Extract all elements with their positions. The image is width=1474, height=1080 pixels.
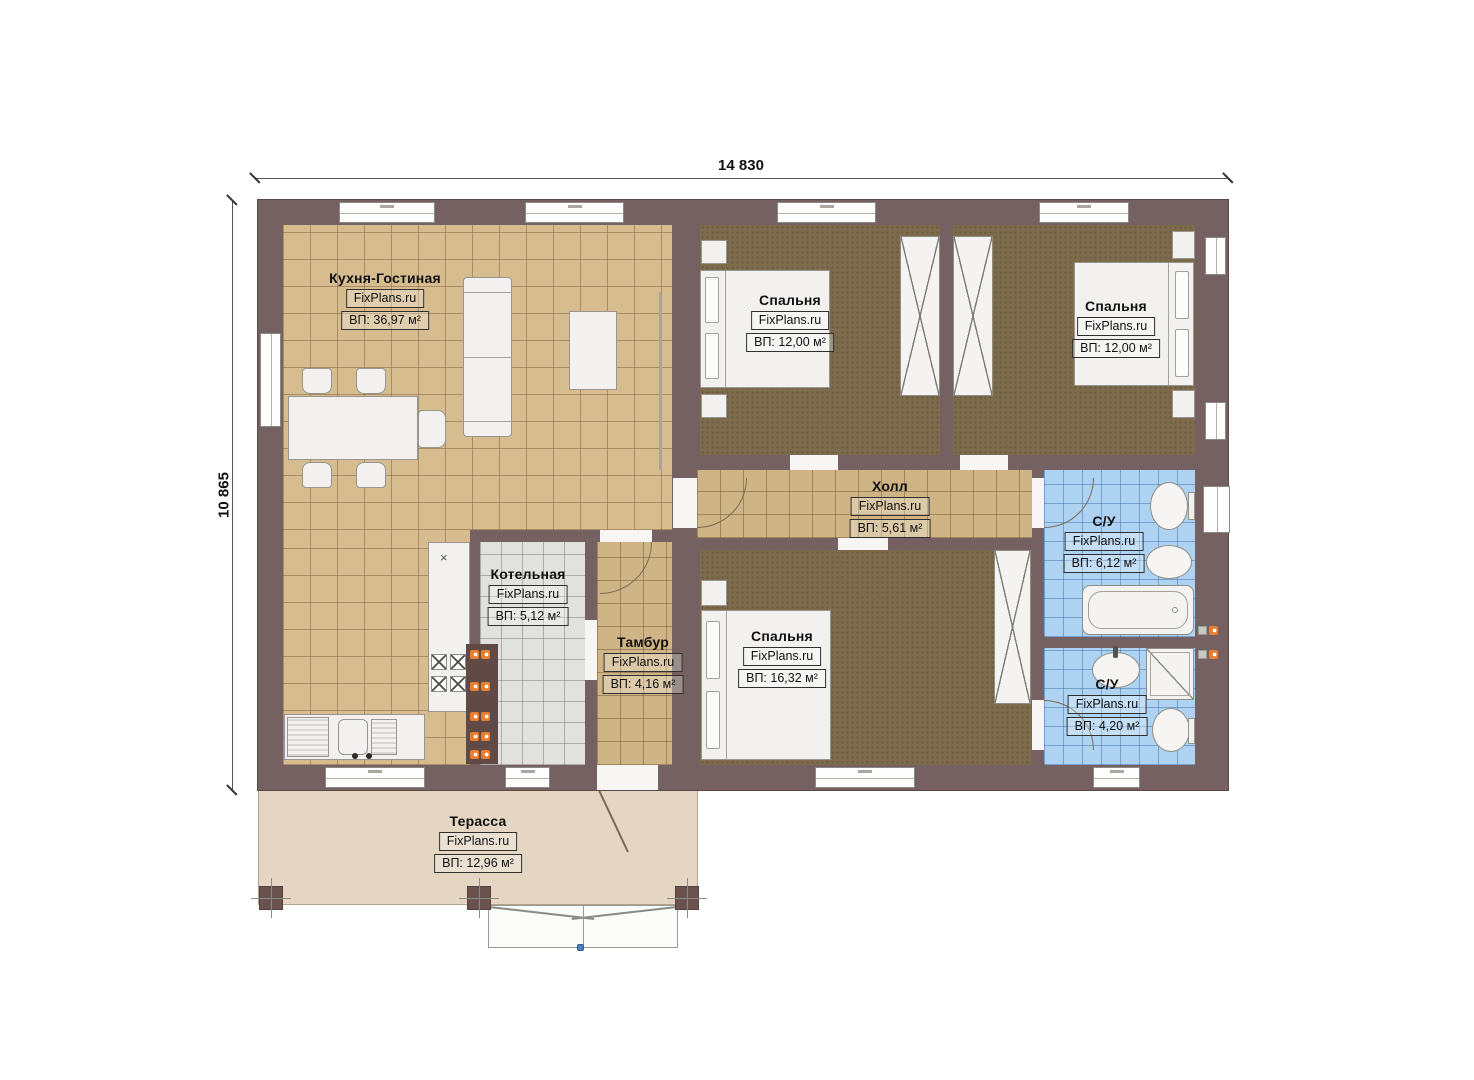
room-name: С/У: [1092, 513, 1115, 529]
window: [339, 202, 435, 223]
room-label-bedroom-2: Спальня FixPlans.ru ВП: 12,00 м²: [1072, 298, 1160, 358]
sink-tap: [352, 753, 358, 759]
washing-machine: [287, 717, 329, 757]
terrace-steps: [488, 905, 678, 948]
window: [1205, 237, 1226, 275]
watermark: FixPlans.ru: [604, 653, 683, 672]
counter-mark: ×: [440, 550, 448, 565]
room-area: ВП: 16,32 м²: [738, 669, 826, 688]
window: [1093, 767, 1140, 788]
sink-drainer: [371, 719, 397, 755]
dimension-top-value: 14 830: [718, 157, 764, 174]
watermark: FixPlans.ru: [346, 289, 425, 308]
room-label-terrace: Терасса FixPlans.ru ВП: 12,96 м²: [434, 813, 522, 873]
entrance-door-opening: [597, 765, 658, 790]
room-area: ВП: 36,97 м²: [341, 311, 429, 330]
sink-tap: [1113, 646, 1118, 658]
room-area: ВП: 4,16 м²: [603, 675, 684, 694]
watermark: FixPlans.ru: [851, 497, 930, 516]
room-label-bedroom-3: Спальня FixPlans.ru ВП: 16,32 м²: [738, 628, 826, 688]
dimension-left-value: 10 865: [216, 472, 233, 518]
door-opening: [600, 530, 652, 542]
terrace-column: [259, 886, 283, 910]
coffee-table: [569, 311, 617, 390]
sink-tap: [366, 753, 372, 759]
room-label-kitchen-living: Кухня-Гостиная FixPlans.ru ВП: 36,97 м²: [329, 270, 441, 330]
chair: [356, 462, 386, 488]
watermark: FixPlans.ru: [743, 647, 822, 666]
window: [815, 767, 915, 788]
stove-burner: [450, 654, 466, 670]
radiator: [470, 732, 490, 741]
room-name: Кухня-Гостиная: [329, 270, 441, 286]
window: [260, 333, 281, 427]
wardrobe: [900, 236, 940, 396]
floor-plan: × Кухня-Г: [0, 0, 1474, 1080]
room-area: ВП: 6,12 м²: [1064, 554, 1145, 573]
door-opening: [673, 478, 697, 528]
door-opening: [1032, 700, 1044, 750]
window: [525, 202, 624, 223]
door-opening: [838, 538, 888, 550]
room-name: Спальня: [759, 292, 821, 308]
room-name: Тамбур: [617, 634, 669, 650]
nightstand: [1172, 231, 1195, 259]
toilet-tank: [1188, 492, 1195, 520]
toilet-tank: [1188, 718, 1195, 744]
wardrobe: [953, 236, 993, 396]
room-area: ВП: 12,00 м²: [746, 333, 834, 352]
window: [1039, 202, 1129, 223]
watermark: FixPlans.ru: [439, 832, 518, 851]
room-area: ВП: 12,96 м²: [434, 854, 522, 873]
room-name: Спальня: [751, 628, 813, 644]
toilet: [1150, 482, 1188, 530]
door-opening: [790, 455, 838, 470]
watermark: FixPlans.ru: [1077, 317, 1156, 336]
chair: [356, 368, 386, 394]
window: [777, 202, 876, 223]
room-label-vestibule: Тамбур FixPlans.ru ВП: 4,16 м²: [603, 634, 684, 694]
shower: [1146, 648, 1194, 700]
stove-panel: [466, 644, 498, 764]
chair: [302, 368, 332, 394]
room-name: Холл: [872, 478, 908, 494]
watermark: FixPlans.ru: [1068, 695, 1147, 714]
door-opening: [1032, 478, 1044, 528]
radiator: [1198, 626, 1218, 635]
watermark: FixPlans.ru: [1065, 532, 1144, 551]
room-area: ВП: 5,61 м²: [850, 519, 931, 538]
toilet: [1152, 708, 1190, 752]
terrace-column: [467, 886, 491, 910]
radiator: [1198, 650, 1218, 659]
bathtub-drain: [1172, 607, 1178, 613]
stove-burner: [431, 676, 447, 692]
room-name: Терасса: [450, 813, 507, 829]
radiator: [470, 712, 490, 721]
stove-burner: [431, 654, 447, 670]
room-name: С/У: [1095, 676, 1118, 692]
terrace-column: [675, 886, 699, 910]
room-area: ВП: 4,20 м²: [1067, 717, 1148, 736]
window: [505, 767, 550, 788]
watermark: FixPlans.ru: [489, 585, 568, 604]
chair: [418, 410, 446, 448]
stove-burner: [450, 676, 466, 692]
room-name: Котельная: [490, 566, 565, 582]
nightstand: [1172, 390, 1195, 418]
window: [1203, 486, 1230, 533]
kitchen-sink: [338, 719, 368, 755]
room-label-bathroom-2: С/У FixPlans.ru ВП: 4,20 м²: [1067, 676, 1148, 736]
room-label-bedroom-1: Спальня FixPlans.ru ВП: 12,00 м²: [746, 292, 834, 352]
nightstand: [701, 240, 727, 264]
room-label-hall: Холл FixPlans.ru ВП: 5,61 м²: [850, 478, 931, 538]
room-label-bathroom-1: С/У FixPlans.ru ВП: 6,12 м²: [1064, 513, 1145, 573]
radiator: [470, 682, 490, 691]
room-area: ВП: 12,00 м²: [1072, 339, 1160, 358]
watermark: FixPlans.ru: [751, 311, 830, 330]
bathroom-sink: [1146, 545, 1192, 579]
dimension-line-top: [255, 178, 1228, 179]
dining-table: [288, 396, 418, 460]
room-area: ВП: 5,12 м²: [488, 607, 569, 626]
door-opening: [585, 620, 597, 680]
window: [1205, 402, 1226, 440]
steps-direction-dot: [577, 944, 584, 951]
radiator: [470, 750, 490, 759]
chair: [302, 462, 332, 488]
window: [325, 767, 425, 788]
tv-unit: [659, 292, 662, 470]
sofa: [463, 277, 512, 437]
nightstand: [701, 580, 727, 606]
nightstand: [701, 394, 727, 418]
radiator: [470, 650, 490, 659]
door-opening: [960, 455, 1008, 470]
wardrobe: [994, 550, 1031, 704]
room-label-boiler: Котельная FixPlans.ru ВП: 5,12 м²: [488, 566, 569, 626]
room-name: Спальня: [1085, 298, 1147, 314]
